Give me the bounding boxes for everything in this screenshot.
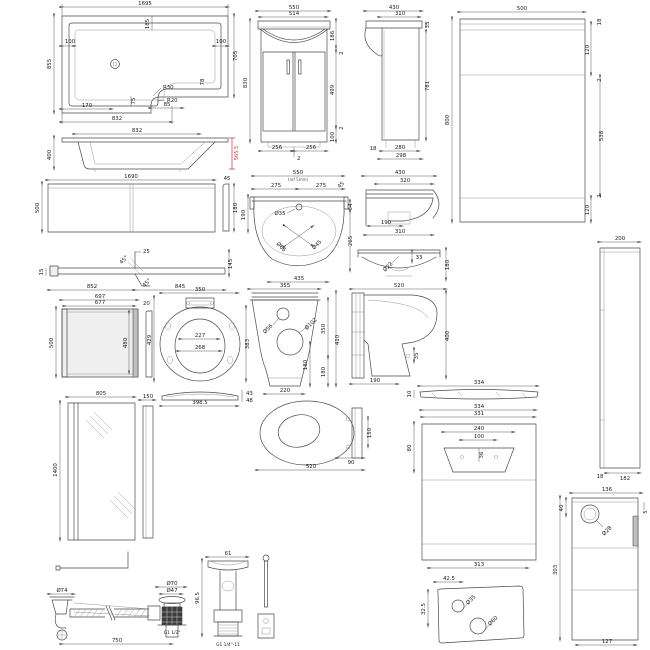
dim-label: 520 — [394, 283, 405, 289]
dim-label: 43 — [246, 391, 253, 397]
dim-label: 677 — [95, 300, 105, 306]
dim-label: 35 — [414, 353, 420, 360]
dim-label: 398.5 — [192, 400, 207, 406]
dim-label: Ø28 — [601, 524, 614, 537]
dim-label: 410 — [335, 334, 341, 345]
dim-label: 520 — [306, 464, 317, 470]
dim-label: 190 — [370, 378, 381, 384]
dim-label: 180 — [233, 202, 239, 213]
dim-label: 220 — [280, 388, 291, 394]
dim-label: 5 — [643, 510, 649, 513]
dim-label: 550 — [293, 170, 304, 176]
dim-label: 180 — [445, 259, 451, 270]
dim-label: 400 — [445, 330, 451, 341]
dim-label: 350 — [321, 323, 327, 334]
dim-label: 781 — [425, 81, 431, 91]
dim-label: 185 — [145, 19, 151, 29]
dim-label: 430 — [395, 170, 406, 176]
dim-label: 265 — [348, 236, 354, 246]
dim-label: 170 — [82, 103, 93, 109]
dim-label: Ø102 — [303, 316, 318, 331]
shower-screen-drawing: 805 150 1400 — [53, 391, 155, 540]
dim-label: 280 — [395, 145, 406, 151]
dim-label: 310 — [395, 11, 406, 17]
dim-label-red: 565.5 — [234, 146, 240, 160]
dim-label: 2 — [297, 156, 300, 162]
dim-label: 180 — [321, 366, 327, 377]
dim-label: 186 — [330, 30, 336, 41]
dim-label: 256 — [272, 145, 283, 151]
dim-label: 100 — [216, 39, 227, 45]
dim-label: 42.5 — [443, 576, 455, 582]
thread-label: G1 1/2" — [164, 630, 181, 636]
dim-label: 355 — [280, 283, 290, 289]
dim-label: 32.5 — [421, 603, 427, 615]
dim-label: 145 — [228, 259, 234, 269]
dim-label: 45 — [337, 181, 346, 190]
basin-plan-drawing: 550 (ref 5mm) 45 275 275 Ø35 Ø66 Ø45 190… — [241, 170, 354, 282]
wc-unit-side-drawing: 200 18 182 — [597, 236, 640, 482]
dim-label: 100 — [65, 39, 76, 45]
basin-side-drawing: 430 320 190 310 — [364, 170, 439, 235]
dim-label: 480 — [123, 337, 129, 348]
dim-label: 1695 — [138, 1, 152, 7]
dim-label: 275 — [316, 183, 326, 189]
dim-label: 36 — [479, 451, 485, 458]
dim-label: 303 — [553, 565, 559, 575]
dim-label: Ø60 — [487, 614, 500, 627]
dim-label: 34 — [348, 203, 354, 210]
dim-label: 256 — [306, 145, 317, 151]
dim-label: 182 — [620, 476, 630, 482]
dim-label: 310 — [395, 229, 406, 235]
dim-label: 80 — [407, 444, 413, 451]
dim-label: 435 — [294, 276, 304, 282]
dim-label: 514 — [289, 11, 300, 17]
dim-label: 750 — [112, 638, 123, 644]
dim-label: 120 — [585, 44, 591, 55]
dim-label: 75 — [131, 98, 137, 105]
dim-label: 334 — [474, 380, 485, 386]
dim-label: 500 — [517, 6, 528, 12]
dim-label: Ø66 — [275, 241, 288, 254]
drawing-sheet: 1695 185 855 100 100 705 78 R30 R20 170 … — [0, 0, 650, 650]
dim-label: 852 — [87, 284, 97, 290]
dim-label: 18 — [370, 146, 377, 152]
panel-cross-section-drawing: 25 45° 45° 15 145 852 845 — [39, 249, 234, 290]
dim-label: Ø56 — [262, 322, 275, 335]
toilet-back-drawing: 355 Ø56 Ø102 180 220 350 180 410 — [250, 283, 341, 394]
dim-label: 499 — [330, 84, 336, 95]
dim-label: 500 — [35, 202, 41, 213]
dim-label: 320 — [400, 178, 411, 184]
dim-label: 150 — [143, 394, 154, 400]
dim-label: 18 — [597, 474, 604, 480]
dim-label: 20 — [143, 301, 150, 307]
dim-label: 227 — [195, 333, 205, 339]
dim-label: 830 — [243, 77, 249, 88]
dim-label: 33 — [416, 255, 423, 261]
dim-label: 18 — [597, 18, 603, 25]
dim-label: 90 — [348, 460, 355, 466]
dim-label: 383 — [245, 339, 251, 349]
bath-waste-kit-drawing: Ø74 Ø70 Ø47 G1 1/2" 750 — [50, 552, 186, 644]
vanity-front-drawing: 550 514 830 186 2 499 2 100 256 256 2 — [243, 5, 345, 162]
dim-label: 400 — [47, 149, 53, 160]
thread-label: G1 1/4"-11 — [216, 642, 240, 648]
dim-label: 832 — [132, 128, 142, 134]
dim-label: 127 — [602, 639, 612, 645]
dim-label: 538 — [599, 130, 605, 141]
dim-label: 334 — [474, 404, 485, 410]
dim-label: 45° — [119, 255, 130, 266]
dim-label: Ø70 — [166, 580, 178, 587]
dim-label: 805 — [96, 391, 106, 397]
dim-label: 61 — [225, 551, 232, 557]
dim-label: Ø35 — [274, 210, 285, 217]
dim-label: 705 — [233, 51, 239, 61]
basin-front-drawing: Ø22 33 180 — [358, 250, 451, 280]
dim-label: 429 — [147, 334, 153, 345]
end-panel-drawing: 697 677 20 500 480 — [49, 294, 152, 377]
dim-label: 25 — [143, 249, 150, 255]
dim-label: 2 — [339, 51, 345, 54]
dim-label: 200 — [615, 236, 626, 242]
dim-label: 350 — [195, 287, 206, 293]
dim-label: 150 — [367, 427, 373, 438]
cistern-tank-drawing: 42.5 32.5 Ø35 Ø60 — [421, 576, 524, 643]
dim-label: 1400 — [53, 463, 59, 477]
dim-label: R30 — [163, 85, 174, 91]
front-panel-drawing: 1690 500 45 180 — [35, 174, 239, 232]
dim-label: 845 — [175, 284, 185, 290]
dim-label: 190 — [381, 220, 392, 226]
vanity-side-drawing: 430 310 35 781 18 280 298 — [365, 5, 431, 159]
dim-label: 832 — [112, 116, 122, 122]
dim-label: 500 — [49, 337, 55, 348]
technical-drawing-canvas: 1695 185 855 100 100 705 78 R30 R20 170 … — [0, 0, 650, 650]
basin-plug-drawing: 61 96.5 G1 1/4"-11 — [195, 551, 274, 648]
dim-label: 15 — [39, 269, 45, 276]
dim-label: 85 — [164, 102, 171, 108]
dim-label: Ø35 — [465, 594, 478, 607]
dim-label: 96.5 — [195, 592, 201, 604]
dim-label: 268 — [195, 345, 206, 351]
dim-label: 100 — [330, 131, 336, 142]
dim-label: 48 — [246, 398, 253, 404]
dim-label: 2 — [339, 126, 345, 129]
dim-label: 45 — [224, 176, 231, 182]
wc-unit-front-drawing: 500 800 18 120 2 538 120 2 — [445, 6, 605, 222]
bath-plan-drawing: 1695 185 855 100 100 705 78 R30 R20 170 … — [47, 1, 239, 124]
toilet-side-drawing: 520 35 400 190 — [352, 283, 451, 384]
dim-label: 120 — [585, 204, 591, 215]
cistern-side-drawing: 136 40 5 Ø28 303 127 — [553, 487, 649, 645]
dim-label: 313 — [474, 562, 484, 568]
dim-label: 45° — [142, 278, 153, 289]
dim-label: 800 — [445, 114, 451, 125]
seat-top-view-drawing: 150 90 520 — [258, 401, 373, 470]
dim-label: 35 — [425, 22, 431, 29]
dim-label: Ø45 — [311, 239, 324, 252]
cistern-lid-drawing: 10 334 — [407, 380, 538, 399]
dim-label: 298 — [396, 153, 407, 159]
toilet-seat-drawing: 350 429 383 227 268 398.5 43 48 — [147, 287, 253, 406]
dim-note: (ref 5mm) — [288, 177, 309, 182]
dim-label: 180 — [303, 359, 309, 370]
dim-label: Ø74 — [56, 587, 68, 594]
dim-label: 78 — [200, 78, 206, 85]
dim-label: 190 — [241, 209, 247, 220]
dim-label: 331 — [474, 411, 484, 417]
bath-elevation-drawing: 832 400 565.5 — [47, 128, 240, 172]
dim-label: 100 — [474, 434, 485, 440]
dim-label: 1690 — [124, 174, 138, 180]
dim-label: 2 — [597, 194, 603, 197]
dim-label: 240 — [474, 426, 485, 432]
dim-label: 855 — [47, 59, 53, 69]
dim-label: 136 — [602, 487, 613, 493]
dim-label: 10 — [407, 390, 413, 397]
dim-label: 275 — [271, 183, 281, 189]
cistern-front-drawing: 334 331 240 100 36 80 313 — [407, 404, 536, 568]
dim-label: Ø47 — [166, 587, 177, 594]
